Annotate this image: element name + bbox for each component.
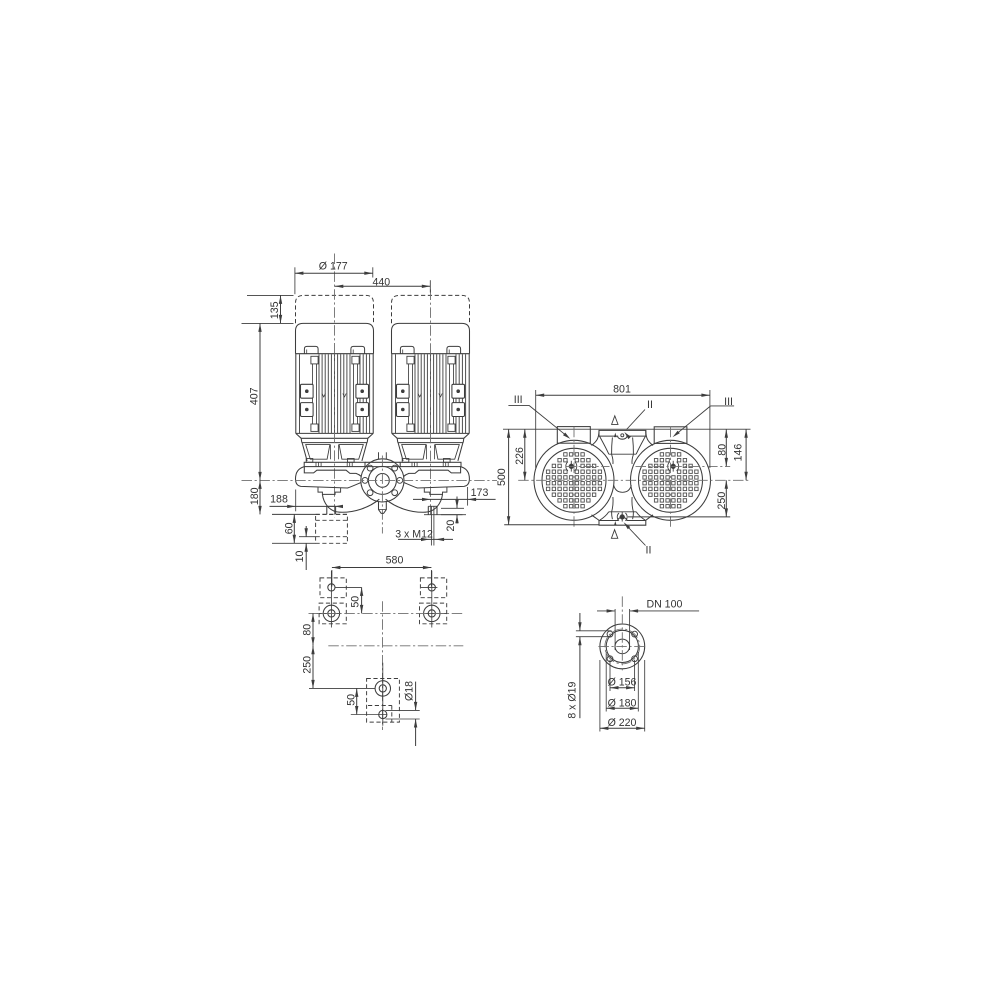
- svg-text:10: 10: [294, 551, 306, 563]
- svg-text:Ø 180: Ø 180: [608, 698, 637, 710]
- svg-text:135: 135: [269, 301, 281, 319]
- svg-text:3 x M12: 3 x M12: [395, 529, 433, 541]
- svg-text:226: 226: [514, 447, 526, 465]
- svg-text:Ø 220: Ø 220: [608, 717, 637, 729]
- svg-text:50: 50: [349, 596, 361, 608]
- svg-text:801: 801: [613, 383, 631, 395]
- svg-text:Ø 177: Ø 177: [319, 260, 348, 272]
- svg-text:146: 146: [733, 444, 745, 462]
- svg-text:80: 80: [716, 444, 728, 456]
- svg-text:20: 20: [445, 520, 457, 532]
- svg-text:250: 250: [716, 492, 728, 510]
- svg-text:440: 440: [372, 276, 390, 288]
- svg-text:Ø 156: Ø 156: [608, 677, 637, 689]
- svg-text:250: 250: [302, 656, 314, 674]
- svg-text:II: II: [647, 399, 653, 411]
- svg-text:III: III: [514, 394, 523, 406]
- svg-text:60: 60: [283, 522, 295, 534]
- svg-text:80: 80: [302, 624, 314, 636]
- svg-text:Ø18: Ø18: [403, 681, 415, 701]
- svg-text:188: 188: [270, 494, 288, 506]
- svg-text:580: 580: [386, 555, 404, 567]
- svg-text:50: 50: [345, 694, 357, 706]
- svg-text:500: 500: [496, 468, 508, 486]
- svg-text:8 x Ø19: 8 x Ø19: [566, 681, 578, 718]
- svg-text:II: II: [646, 545, 652, 557]
- svg-text:407: 407: [248, 387, 260, 405]
- svg-text:180: 180: [249, 487, 261, 505]
- svg-text:DN 100: DN 100: [646, 598, 682, 610]
- svg-text:173: 173: [471, 487, 489, 499]
